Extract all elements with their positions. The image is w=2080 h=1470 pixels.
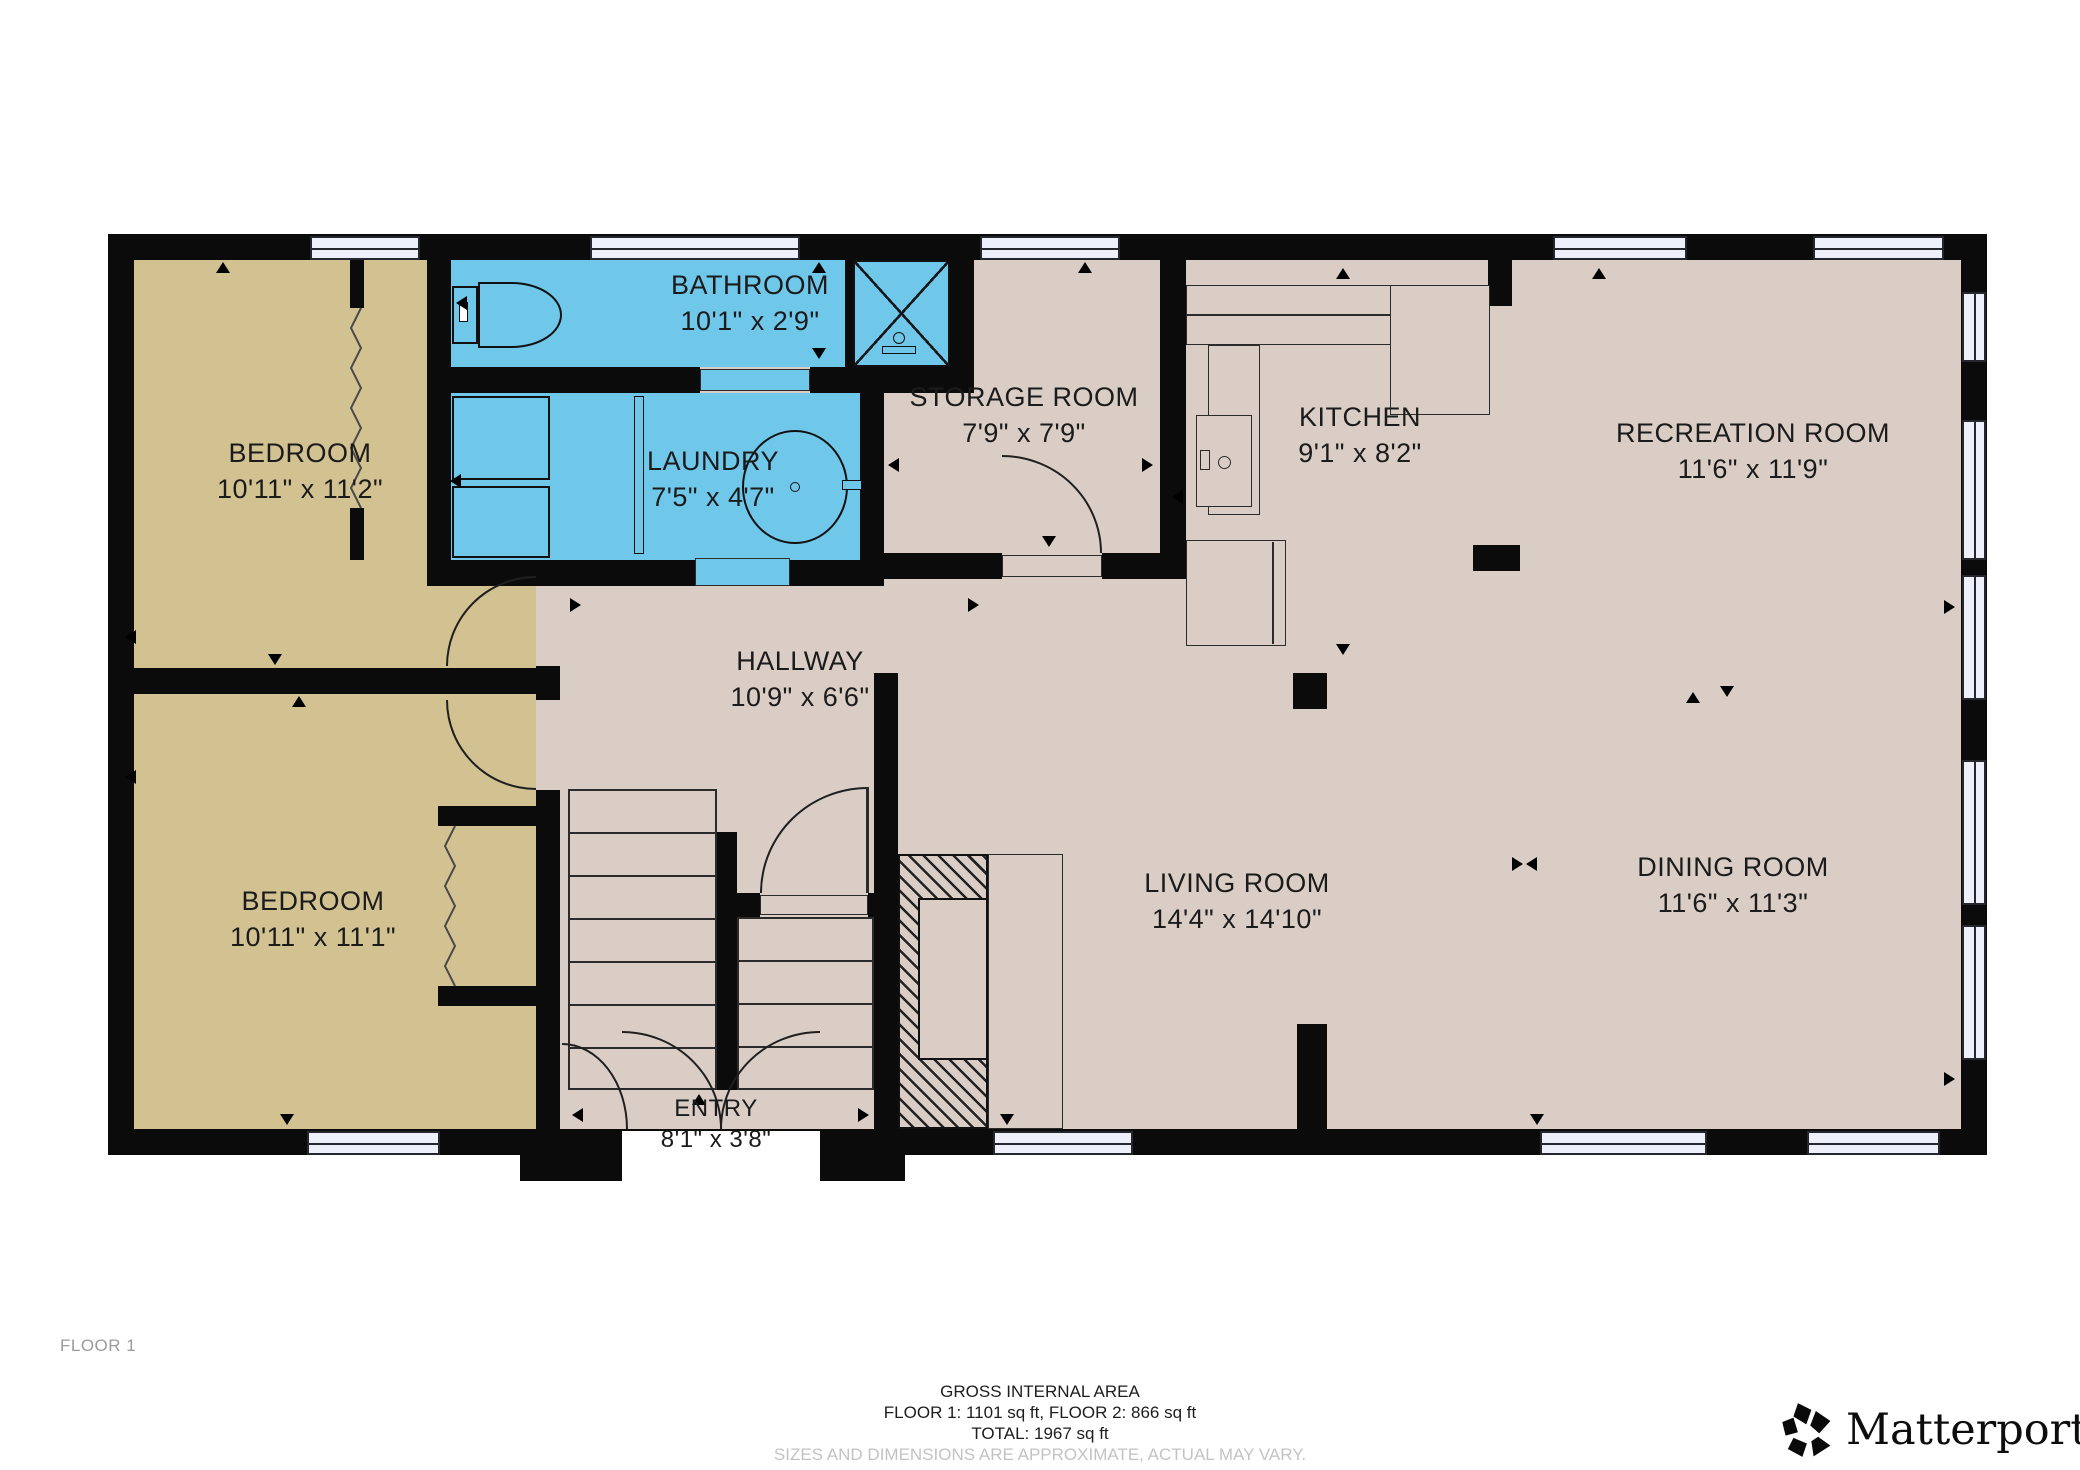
- window-right-1: [1962, 292, 1986, 362]
- threshold-hallway-door: [760, 895, 868, 915]
- closet1-stub-top: [350, 260, 364, 308]
- wall-storage-bottom-left: [860, 553, 1002, 579]
- pocket-door-laundry: [695, 558, 790, 586]
- laundry-faucet-icon: [842, 480, 862, 490]
- dryer-icon: [452, 486, 550, 558]
- room-name: KITCHEN: [1190, 400, 1530, 434]
- disclaimer: SIZES AND DIMENSIONS ARE APPROXIMATE, AC…: [340, 1444, 1740, 1465]
- area-line: FLOOR 1: 1101 sq ft, FLOOR 2: 866 sq ft: [340, 1402, 1740, 1423]
- floor-plan-canvas: BEDROOM 10'11" x 11'2" BEDROOM 10'11" x …: [0, 0, 2080, 1470]
- window-right-5: [1962, 925, 1986, 1060]
- closet2-wall-top: [438, 806, 536, 826]
- area-title: GROSS INTERNAL AREA: [340, 1381, 1740, 1402]
- room-dims: 10'1" x 2'9": [580, 304, 920, 338]
- direction-marker: [268, 654, 282, 665]
- direction-marker: [1042, 536, 1056, 547]
- room-label-laundry: LAUNDRY 7'5" x 4'7": [593, 444, 833, 514]
- direction-marker: [1000, 1114, 1014, 1125]
- wall-stairs-center: [717, 832, 737, 1090]
- window-right-4: [1962, 760, 1986, 905]
- wall-kitchen-rec-stub: [1473, 545, 1520, 571]
- window-dining-bottom-1: [1540, 1131, 1707, 1155]
- room-label-bedroom-1: BEDROOM 10'11" x 11'2": [140, 436, 460, 506]
- direction-marker: [1530, 1114, 1544, 1125]
- kitchen-fridge: [1186, 540, 1286, 646]
- direction-marker: [968, 598, 979, 612]
- room-name: HALLWAY: [640, 644, 960, 678]
- wall-bedroom1-bath: [427, 260, 451, 560]
- direction-marker: [1172, 490, 1183, 504]
- room-dims: 10'11" x 11'1": [153, 920, 473, 954]
- fireplace-firebox: [918, 898, 988, 1060]
- door-leaf-hallway: [866, 787, 869, 893]
- room-dims: 11'6" x 11'3": [1563, 886, 1903, 920]
- wall-bathroom-storage: [950, 260, 974, 393]
- room-name: BEDROOM: [140, 436, 460, 470]
- room-name: STORAGE ROOM: [854, 380, 1194, 414]
- room-dims: 7'9" x 7'9": [854, 416, 1194, 450]
- room-dims: 8'1" x 3'8": [611, 1125, 821, 1154]
- room-dims: 10'9" x 6'6": [640, 680, 960, 714]
- direction-marker: [858, 1108, 869, 1122]
- fireplace-chimney: [988, 854, 1063, 1129]
- wall-hall-door-right: [868, 893, 874, 917]
- room-label-dining: DINING ROOM 11'6" x 11'3": [1563, 850, 1903, 920]
- shower-valve-icon: [882, 346, 916, 354]
- direction-marker: [292, 696, 306, 707]
- window-bedroom2-bottom: [307, 1131, 440, 1155]
- wall-kitchen-rec-top: [1488, 260, 1512, 306]
- window-recreation-top-1: [1553, 236, 1687, 260]
- direction-marker: [1526, 857, 1537, 871]
- room-label-kitchen: KITCHEN 9'1" x 8'2": [1190, 400, 1530, 470]
- window-dining-bottom-2: [1807, 1131, 1940, 1155]
- pocket-door-bathroom: [700, 369, 810, 391]
- window-right-3: [1962, 575, 1986, 700]
- kitchen-cabinet-right: [1390, 285, 1490, 415]
- wall-living-dining-stub: [1297, 1024, 1327, 1129]
- direction-marker: [1336, 644, 1350, 655]
- washer-icon: [452, 396, 550, 480]
- direction-marker: [1142, 458, 1153, 472]
- wall-left: [108, 234, 134, 1155]
- wall-bedrooms-divider: [108, 668, 560, 694]
- room-label-living: LIVING ROOM 14'4" x 14'10": [1067, 866, 1407, 936]
- matterport-brand: Matterport®: [1780, 1402, 2080, 1458]
- brand-name: Matterport: [1846, 1405, 2080, 1455]
- direction-marker: [570, 598, 581, 612]
- matterport-logo-icon: [1780, 1402, 1836, 1458]
- window-bedroom1-top: [310, 236, 420, 260]
- direction-marker: [1336, 268, 1350, 279]
- direction-marker: [280, 1114, 294, 1125]
- direction-marker: [1512, 857, 1523, 871]
- room-dims: 7'5" x 4'7": [593, 480, 833, 514]
- room-label-entry: ENTRY 8'1" x 3'8": [611, 1094, 821, 1154]
- direction-marker: [572, 1108, 583, 1122]
- window-living-bottom: [993, 1131, 1133, 1155]
- room-name: RECREATION ROOM: [1533, 416, 1973, 450]
- pillar: [1293, 673, 1327, 709]
- floor-label: FLOOR 1: [60, 1336, 136, 1356]
- area-summary: GROSS INTERNAL AREA FLOOR 1: 1101 sq ft,…: [340, 1381, 1740, 1465]
- room-label-bathroom: BATHROOM 10'1" x 2'9": [580, 268, 920, 338]
- direction-marker: [216, 262, 230, 273]
- direction-marker: [1592, 268, 1606, 279]
- room-name: LIVING ROOM: [1067, 866, 1407, 900]
- closet2-wall-bottom: [438, 986, 536, 1006]
- direction-marker: [1720, 686, 1734, 697]
- threshold-storage-door: [1002, 555, 1102, 577]
- brand-wordmark: Matterport®: [1846, 1405, 2080, 1455]
- closet1-stub-bottom: [350, 508, 364, 560]
- room-name: DINING ROOM: [1563, 850, 1903, 884]
- window-bathroom-top: [590, 236, 800, 260]
- room-name: ENTRY: [611, 1094, 821, 1123]
- total-line: TOTAL: 1967 sq ft: [340, 1423, 1740, 1444]
- wall-laundry-bottom-right: [790, 560, 860, 586]
- room-dims: 14'4" x 14'10": [1067, 902, 1407, 936]
- wall-hall-c: [536, 790, 560, 1129]
- room-name: BEDROOM: [153, 884, 473, 918]
- direction-marker: [125, 770, 136, 784]
- wall-hall-b: [536, 666, 560, 700]
- wall-entry-living: [874, 673, 898, 1129]
- room-dims: 10'11" x 11'2": [140, 472, 460, 506]
- room-label-hallway: HALLWAY 10'9" x 6'6": [640, 644, 960, 714]
- direction-marker: [888, 458, 899, 472]
- direction-marker: [1944, 600, 1955, 614]
- room-name: BATHROOM: [580, 268, 920, 302]
- kitchen-fridge-door-line: [1272, 542, 1274, 644]
- window-storage-top: [980, 236, 1120, 260]
- direction-marker: [456, 296, 467, 310]
- room-label-storage: STORAGE ROOM 7'9" x 7'9": [854, 380, 1194, 450]
- wall-bathroom-bottom-left: [451, 367, 700, 393]
- room-label-recreation: RECREATION ROOM 11'6" x 11'9": [1533, 416, 1973, 486]
- window-recreation-top-2: [1813, 236, 1944, 260]
- room-dims: 9'1" x 8'2": [1190, 436, 1530, 470]
- direction-marker: [1686, 692, 1700, 703]
- floor-plan: BEDROOM 10'11" x 11'2" BEDROOM 10'11" x …: [0, 0, 2080, 1470]
- wall-laundry-bottom-left: [427, 560, 695, 586]
- direction-marker: [1078, 262, 1092, 273]
- room-label-bedroom-2: BEDROOM 10'11" x 11'1": [153, 884, 473, 954]
- direction-marker: [812, 348, 826, 359]
- direction-marker: [1944, 1072, 1955, 1086]
- room-name: LAUNDRY: [593, 444, 833, 478]
- room-dims: 11'6" x 11'9": [1533, 452, 1973, 486]
- direction-marker: [125, 630, 136, 644]
